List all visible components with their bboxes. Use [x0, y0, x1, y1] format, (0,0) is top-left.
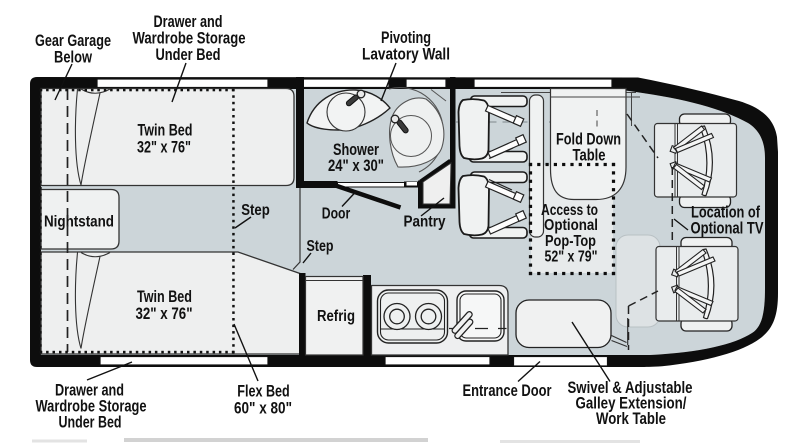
svg-text:32" x 76": 32" x 76"	[137, 137, 191, 156]
svg-text:Step: Step	[307, 238, 334, 255]
svg-text:Under Bed: Under Bed	[59, 413, 122, 432]
svg-text:24" x 30": 24" x 30"	[328, 156, 384, 175]
svg-text:Work Table: Work Table	[596, 409, 666, 428]
svg-text:60" x 80": 60" x 80"	[234, 399, 292, 418]
svg-text:Optional TV: Optional TV	[691, 219, 765, 238]
svg-text:Pantry: Pantry	[404, 214, 446, 231]
svg-text:Pop-Top: Pop-Top	[545, 233, 596, 250]
svg-text:Table: Table	[573, 146, 606, 165]
svg-text:Nightstand: Nightstand	[44, 214, 114, 231]
svg-text:Entrance Door: Entrance Door	[463, 381, 552, 400]
svg-text:Door: Door	[322, 206, 351, 223]
svg-text:Optional: Optional	[544, 217, 598, 234]
svg-text:Step: Step	[241, 202, 270, 219]
svg-text:Lavatory Wall: Lavatory Wall	[362, 45, 450, 64]
svg-text:Refrig: Refrig	[317, 308, 355, 325]
svg-text:32" x 76": 32" x 76"	[136, 304, 193, 323]
svg-text:Below: Below	[54, 48, 93, 67]
svg-text:52" x 79": 52" x 79"	[545, 249, 598, 266]
svg-text:Under Bed: Under Bed	[156, 45, 221, 64]
